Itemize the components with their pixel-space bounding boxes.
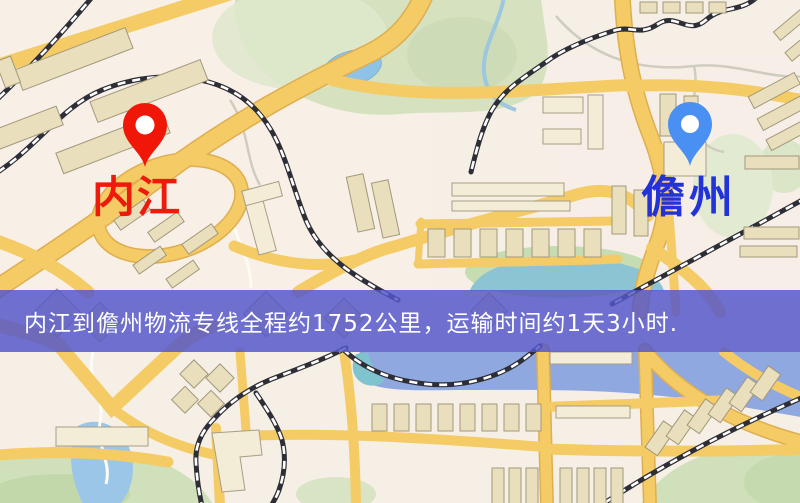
map-canvas (0, 0, 800, 503)
origin-city-label: 内江 (92, 177, 182, 220)
route-info-text: 内江到儋州物流专线全程约1752公里，运输时间约1天3小时. (0, 304, 678, 338)
route-map-image: 内江 儋州 内江到儋州物流专线全程约1752公里，运输时间约1天3小时. (0, 0, 800, 503)
route-info-banner: 内江到儋州物流专线全程约1752公里，运输时间约1天3小时. (0, 290, 800, 352)
destination-pin-icon (662, 100, 718, 168)
origin-pin-icon (117, 101, 173, 169)
destination-city-label: 儋州 (641, 176, 737, 220)
